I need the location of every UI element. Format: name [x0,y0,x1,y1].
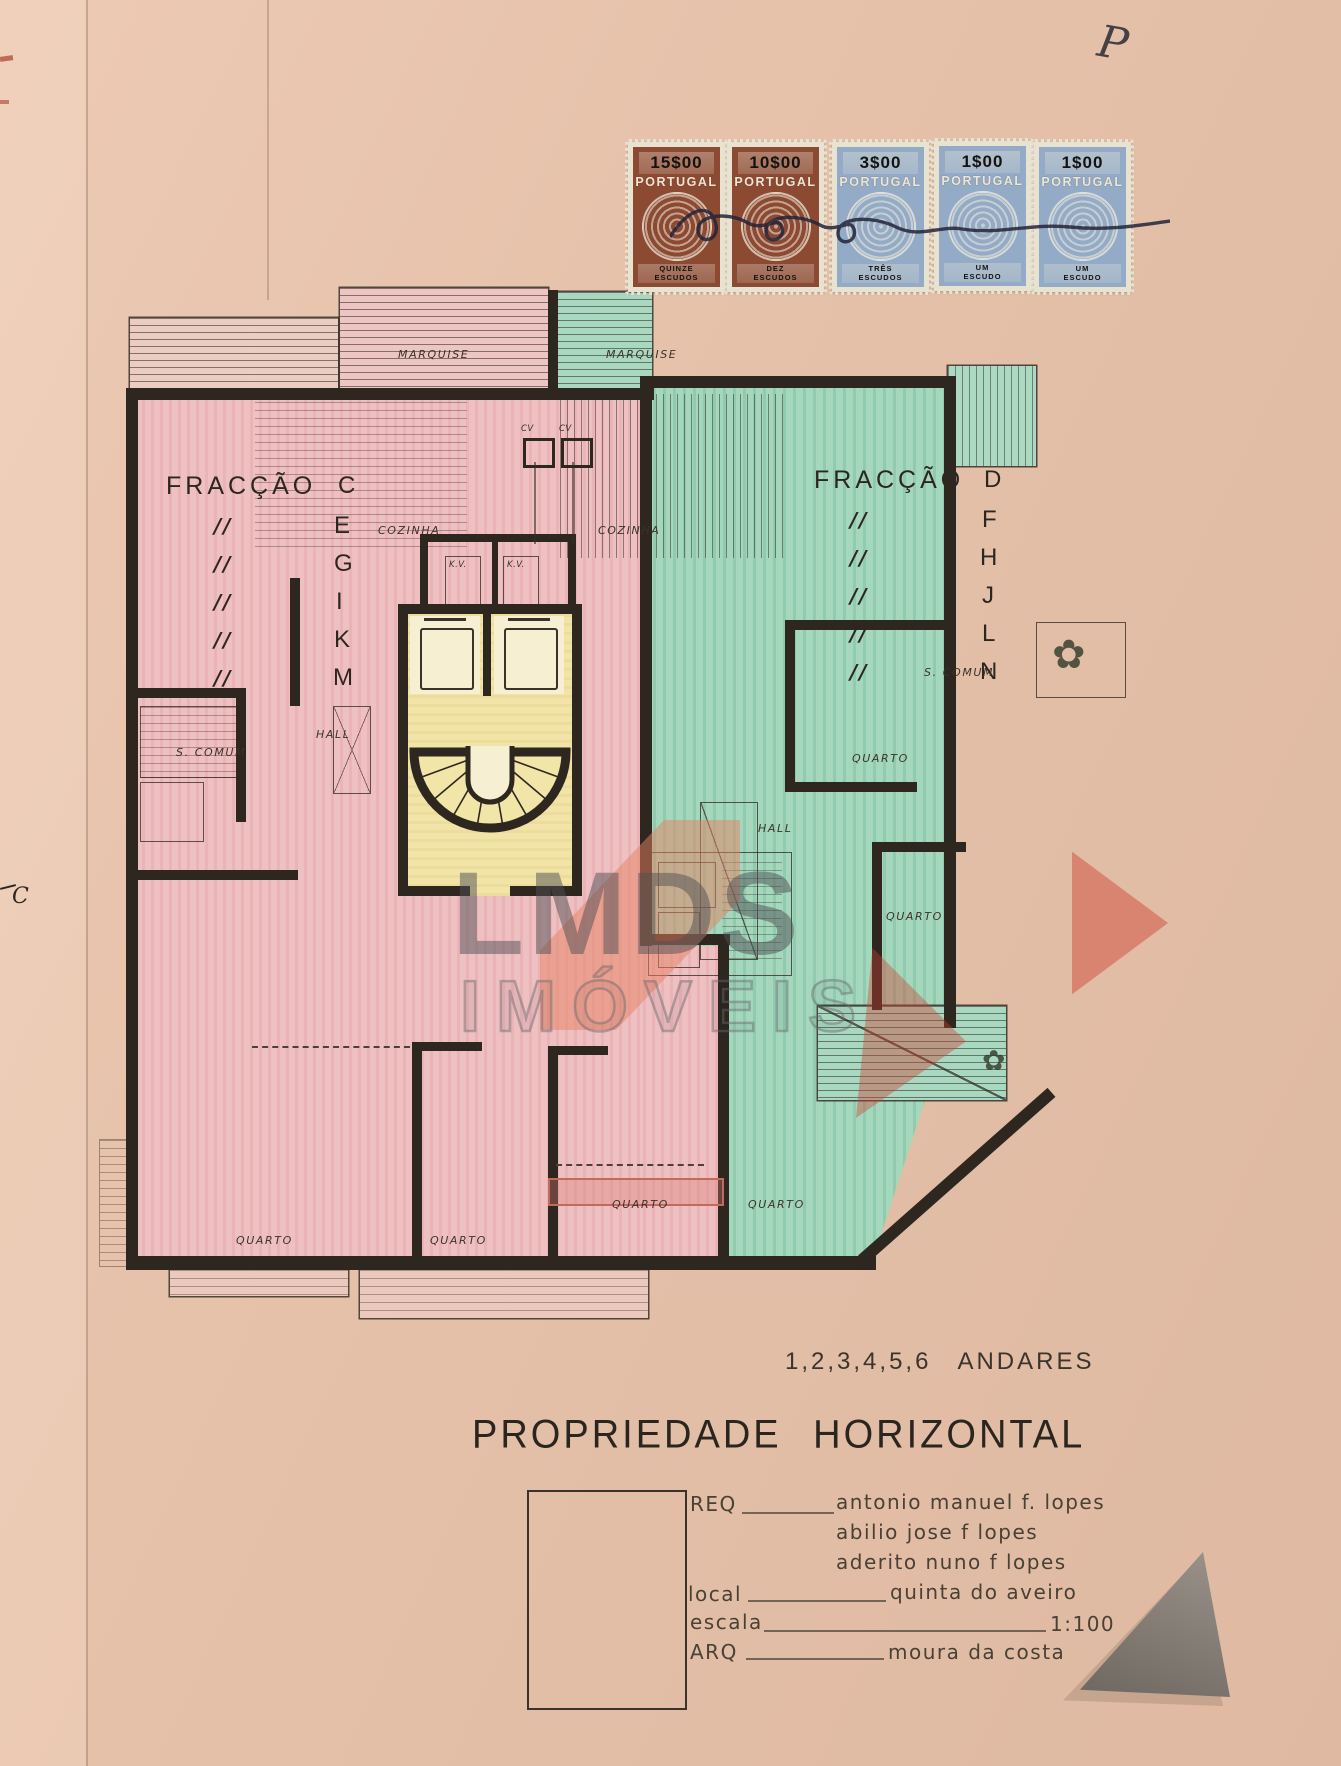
room-label-quarto: QUARTO [612,1198,669,1211]
stamp-denomination: TRÊSESCUDOS [842,264,919,283]
pen-cancellation-squiggle [670,185,1170,265]
balcony-top-right [948,366,1036,466]
room-label-quarto: QUARTO [748,1198,805,1211]
marquise-left-area [340,288,548,392]
ditto-mark: // [214,514,233,538]
threshold-dash [556,1164,704,1166]
threshold-dash [252,1046,410,1048]
room-label-marquise: MARQUISE [606,348,677,361]
arq-value: moura da costa [888,1640,1065,1664]
closet-left [333,706,371,794]
corner-pen-mark: P [1094,16,1132,71]
room-label-hall: HALL [758,822,792,835]
wall-segment [412,1046,422,1258]
watermark-text-lmds: LMDS [452,846,802,982]
req-value-3: aderito nuno f lopes [836,1550,1067,1574]
wall-segment [785,782,917,792]
room-label-cv: CV [559,424,572,434]
wall-segment [652,376,954,388]
local-line [748,1600,886,1602]
wall-segment [290,578,300,706]
elevator-door-line [424,618,466,621]
stamp-value: 1$00 [945,151,1020,173]
ditto-mark: // [850,622,869,646]
paper-left-margin [0,0,88,1766]
stamp-denomination: DEZESCUDOS [737,264,814,283]
fraction-left-letter: I [336,588,343,616]
watermark-text-imoveis: IMÓVEIS [460,966,872,1048]
fraction-right-letter: F [982,506,997,534]
fraction-right-letter: L [982,620,995,648]
room-label-kv: K.V. [449,560,467,570]
stamp-value: 3$00 [843,152,918,174]
page-title: PROPRIEDADE HORIZONTAL [472,1413,1085,1459]
escala-line [764,1630,1046,1632]
room-label-hall: HALL [316,728,350,741]
wall-segment [785,620,955,630]
vent-shaft-box [561,438,593,468]
wall-segment [126,388,138,1270]
ditto-mark: // [850,660,869,684]
wall-segment [872,842,966,852]
floors-note: 1,2,3,4,5,6ANDARES [785,1348,1094,1376]
fraction-left-letter: G [334,550,353,578]
ditto-mark: // [214,552,233,576]
stamp-value: 10$00 [738,152,813,174]
room-label-marquise: MARQUISE [398,348,469,361]
fraction-right-letter: H [980,544,997,572]
floors-word: ANDARES [957,1348,1094,1375]
balcony-top-left [130,318,338,392]
local-value: quinta do aveiro [890,1580,1077,1604]
ditto-mark: // [850,546,869,570]
margin-mark: C [12,884,29,909]
wall-segment [785,620,795,792]
wall-segment [420,534,428,612]
arq-label: ARQ [690,1640,738,1664]
plant-icon: ✿ [982,1044,1005,1077]
fraction-left-letter: M [333,664,353,692]
req-line [742,1512,834,1514]
stamp-value: 15$00 [639,152,714,174]
escala-value: 1:100 [1050,1612,1115,1636]
wall-segment [126,1256,876,1270]
room-label-cozinha: COZINHA [378,524,440,537]
room-label-quarto: QUARTO [852,752,909,765]
fraction-left-title: FRACÇÃO [166,472,316,501]
vent-shaft-box [523,438,555,468]
room-label-quarto: QUARTO [430,1234,487,1247]
req-value-2: abilio jose f lopes [836,1520,1038,1544]
plant-icon: ✿ [1052,632,1086,678]
room-label-cv: CV [521,424,534,434]
title-block-square [527,1490,687,1710]
wall-segment [420,534,576,542]
fraction-left-letter: E [334,512,350,540]
wall-segment [568,534,576,612]
stamp-denomination: QUINZEESCUDOS [638,264,715,283]
local-label: local [688,1582,742,1606]
elevator-cab [420,628,474,690]
wall-segment [126,388,358,400]
paper-crease [267,0,269,300]
room-label-quarto: QUARTO [886,910,943,923]
stamp-value: 1$00 [1045,152,1120,174]
ditto-mark: // [214,628,233,652]
ditto-mark: // [850,584,869,608]
wall-segment [548,290,558,400]
red-edge-mark [0,100,9,104]
terrace-left-strip [100,1140,128,1266]
wall-segment [492,534,498,612]
room-label-s-comum: S. COMUM [924,666,994,679]
room-label-quarto: QUARTO [236,1234,293,1247]
balcony-bottom-1 [170,1270,348,1296]
scanned-plan-page: C P [0,0,1341,1766]
fraction-left-letter: C [338,472,355,500]
room-label-s-comum: S. COMUM [176,746,246,759]
ditto-mark: // [850,508,869,532]
req-label: REQ [690,1492,737,1516]
escala-label: escala [690,1610,763,1634]
wall-segment [356,388,654,400]
elevator-cab [504,628,558,690]
stamp-denomination: UMESCUDO [944,263,1021,282]
req-value-1: antonio manuel f. lopes [836,1490,1105,1514]
room-label-cozinha: COZINHA [598,524,660,537]
wc-left-box2 [140,782,204,842]
stamp-denomination: UMESCUDO [1044,264,1121,283]
vent-leader-line [534,462,536,544]
arq-line [746,1658,884,1660]
room-label-kv: K.V. [507,560,525,570]
balcony-bottom-2 [360,1270,648,1318]
wall-segment [133,870,298,880]
vent-leader-line [572,462,574,544]
ditto-mark: // [214,590,233,614]
fraction-right-letter: D [984,466,1001,494]
wall-segment [483,612,491,696]
fraction-right-letter: J [982,582,994,610]
wall-segment [548,1050,558,1258]
ditto-mark: // [214,666,233,690]
fraction-right-title: FRACÇÃO [814,466,964,495]
elevator-door-line [508,618,550,621]
floors-numbers: 1,2,3,4,5,6 [785,1348,931,1375]
watermark-shape-arrow [1072,838,1168,1008]
marquise-right-area [558,292,652,398]
fraction-left-letter: K [334,626,350,654]
wc-left-box [140,706,238,778]
green-entry-hatch [656,394,788,558]
